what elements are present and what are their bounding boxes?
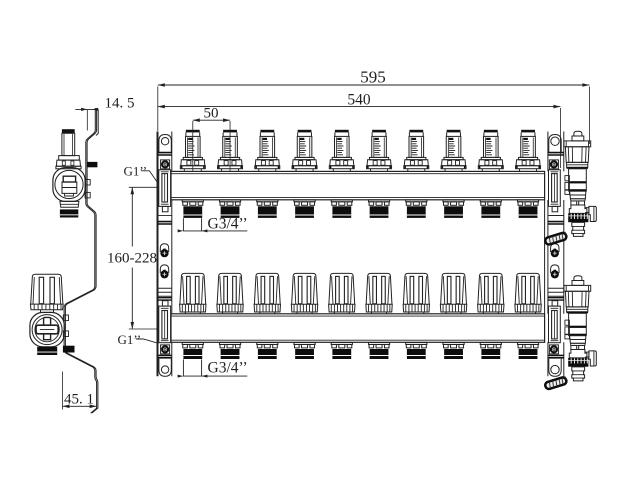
svg-text:14. 5: 14. 5: [105, 96, 135, 112]
svg-text:50: 50: [204, 105, 219, 121]
svg-text:G3/4’’: G3/4’’: [208, 360, 248, 377]
svg-text:G1’’: G1’’: [118, 332, 142, 347]
svg-text:595: 595: [360, 68, 386, 87]
svg-text:540: 540: [347, 92, 371, 109]
svg-text:G3/4’’: G3/4’’: [208, 216, 248, 233]
svg-text:45. 1: 45. 1: [64, 392, 94, 408]
svg-text:160-228: 160-228: [107, 251, 157, 267]
